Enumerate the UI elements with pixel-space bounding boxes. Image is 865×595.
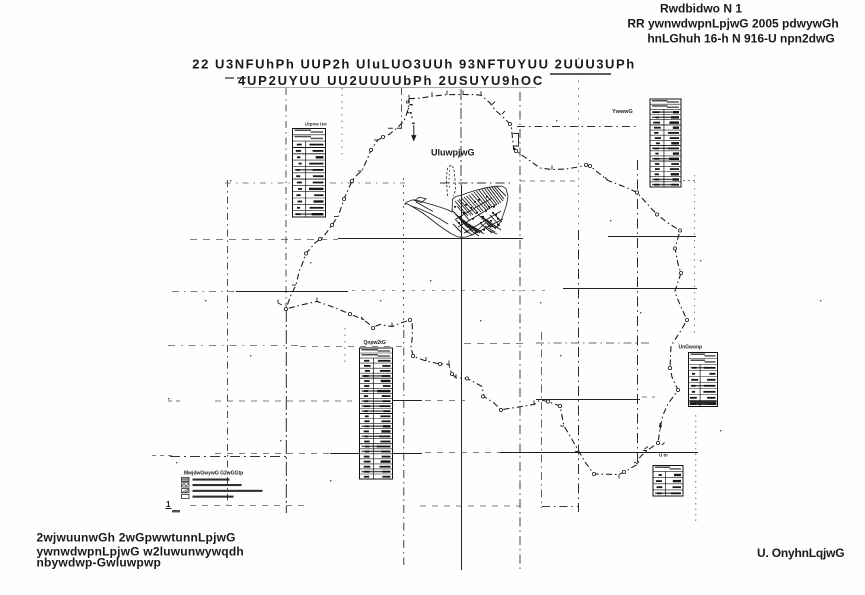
svg-text:UnGwonp: UnGwonp [679,345,703,351]
svg-text:UluwpjwG: UluwpjwG [431,148,475,158]
svg-text:2wjwuunwGh 2wGpwwtunnLpjwG: 2wjwuunwGh 2wGpwwtunnLpjwG [37,531,236,545]
svg-text:nbywdwp-Gwluwpwp: nbywdwp-Gwluwpwp [37,556,162,570]
svg-text:22 U3NFUhPh UUP2h UluLUO3UUh 9: 22 U3NFUhPh UUP2h UluLUO3UUh 93NFTUYUU 2… [192,57,635,72]
svg-text:RR ywnwdwpnLpjwG 2005 pdwywGh: RR ywnwdwpnLpjwG 2005 pdwywGh [627,17,838,31]
svg-text:Rwdbidwo N 1: Rwdbidwo N 1 [660,2,742,16]
svg-text:U tn: U tn [659,453,668,458]
svg-text:Utpow Uw: Utpow Uw [305,122,327,127]
svg-text:MwjdwGwywG G2wGGtp: MwjdwGwywG G2wGGtp [184,471,243,477]
svg-text:Qnpw2tG: Qnpw2tG [364,340,386,346]
svg-text:hnLGhuh 16-h N 916-U npn2dwG: hnLGhuh 16-h N 916-U npn2dwG [647,32,834,46]
svg-text:U. OnyhnLqjwG: U. OnyhnLqjwG [757,546,844,560]
svg-text:4UP2UYUU UU2UUUUbPh 2USUYU9hOC: 4UP2UYUU UU2UUUUbPh 2USUYU9hOC [238,73,544,88]
svg-text:1: 1 [166,500,171,509]
svg-text:YwwwG: YwwwG [612,109,633,115]
